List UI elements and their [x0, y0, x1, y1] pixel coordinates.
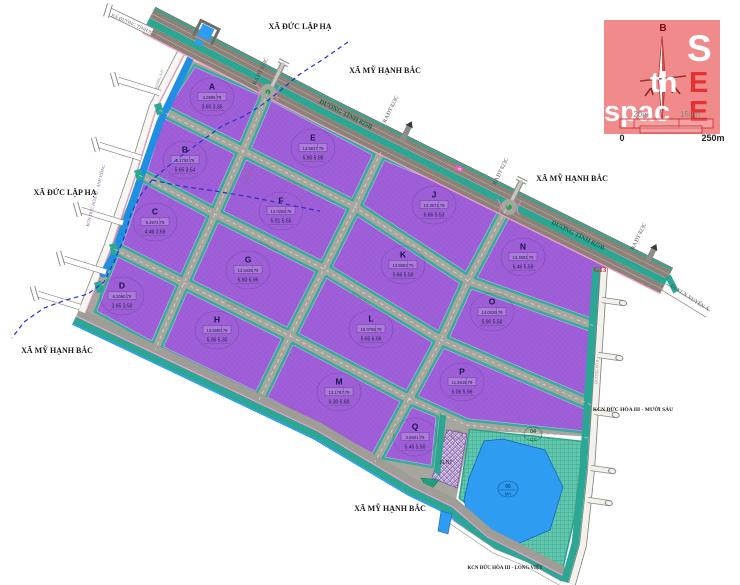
- svg-text:B: B: [182, 145, 188, 155]
- svg-text:B: B: [659, 23, 666, 34]
- svg-text:XÃ MỸ HẠNH BẮC: XÃ MỸ HẠNH BẮC: [536, 173, 608, 183]
- svg-text:13.5080 79: 13.5080 79: [207, 328, 229, 333]
- svg-text:11.3916 79: 11.3916 79: [452, 380, 473, 385]
- svg-text:th: th: [650, 67, 677, 99]
- svg-text:M: M: [335, 377, 342, 387]
- svg-text:D: D: [119, 281, 125, 291]
- svg-text:13.1787 79: 13.1787 79: [329, 390, 351, 395]
- svg-text:3.65 3.50: 3.65 3.50: [112, 304, 133, 310]
- svg-text:5.50 5.96: 5.50 5.96: [238, 278, 259, 284]
- svg-text:12.4581 79: 12.4581 79: [513, 255, 535, 260]
- svg-text:0: 0: [619, 133, 624, 143]
- svg-text:XÃ MỸ HẠNH BẮC: XÃ MỸ HẠNH BẮC: [349, 65, 421, 75]
- svg-text:5.1793 79: 5.1793 79: [176, 158, 195, 163]
- svg-text:13.8425 79: 13.8425 79: [238, 268, 260, 273]
- svg-text:5.91 5.55: 5.91 5.55: [271, 219, 292, 225]
- svg-text:G: G: [245, 255, 252, 265]
- svg-text:CX: CX: [530, 437, 536, 442]
- svg-text:20m: 20m: [633, 110, 649, 119]
- svg-text:XÃ MỸ HẠNH BẮC: XÃ MỸ HẠNH BẮC: [354, 503, 426, 513]
- svg-text:5.4574 79: 5.4574 79: [146, 220, 165, 225]
- svg-text:4.46 3.59: 4.46 3.59: [145, 230, 166, 236]
- svg-text:6.66 5.53: 6.66 5.53: [424, 213, 445, 219]
- svg-text:XÃ ĐỨC LẬP HẠ: XÃ ĐỨC LẬP HẠ: [268, 21, 331, 31]
- svg-text:5.90 5.98: 5.90 5.98: [303, 156, 324, 162]
- svg-text:A: A: [209, 82, 215, 92]
- svg-text:5.66 5.50: 5.66 5.50: [393, 273, 414, 279]
- svg-text:F: F: [278, 196, 283, 206]
- svg-text:5.06 5.96: 5.06 5.96: [452, 390, 473, 396]
- svg-text:KCN ĐỨC HÒA III - MƯỜI SÁU: KCN ĐỨC HÒA III - MƯỜI SÁU: [593, 405, 673, 413]
- svg-text:13.5817 79: 13.5817 79: [303, 146, 325, 151]
- svg-text:16.0765 79: 16.0765 79: [361, 327, 383, 332]
- svg-text:3.65 3.35: 3.65 3.35: [202, 105, 223, 111]
- svg-text:XLNT: XLNT: [440, 460, 453, 466]
- svg-text:14.0026 79: 14.0026 79: [482, 310, 504, 315]
- svg-text:L: L: [368, 314, 373, 324]
- svg-text:K: K: [400, 250, 407, 260]
- svg-text:250m: 250m: [701, 133, 724, 143]
- svg-text:6.2060 79: 6.2060 79: [113, 294, 132, 299]
- svg-text:150m: 150m: [680, 110, 700, 119]
- svg-text:N: N: [520, 242, 526, 252]
- svg-text:3.6501 79: 3.6501 79: [406, 435, 425, 440]
- svg-text:13.0268 79: 13.0268 79: [271, 209, 293, 214]
- svg-text:04: 04: [530, 429, 537, 435]
- svg-text:XÃ MỸ HẠNH BẮC: XÃ MỸ HẠNH BẮC: [21, 345, 93, 355]
- svg-text:E: E: [689, 67, 708, 99]
- svg-text:13.6582 79: 13.6582 79: [393, 263, 415, 268]
- svg-text:P: P: [459, 367, 465, 377]
- svg-text:5.46 5.59: 5.46 5.59: [513, 265, 534, 271]
- svg-text:5.46 5.50: 5.46 5.50: [405, 445, 426, 451]
- svg-text:6.30 5.60: 6.30 5.60: [329, 400, 350, 406]
- svg-text:KCN ĐỨC HÒA III - LONG VIỆT: KCN ĐỨC HÒA III - LONG VIỆT: [467, 565, 543, 571]
- svg-text:G13: G13: [594, 266, 607, 274]
- svg-text:5.90 5.50: 5.90 5.50: [482, 320, 503, 326]
- svg-text:E: E: [310, 133, 316, 143]
- svg-text:Q: Q: [412, 422, 419, 432]
- svg-text:J: J: [432, 190, 437, 200]
- svg-text:C: C: [152, 207, 158, 217]
- svg-text:XÃ ĐỨC LẬP HẠ: XÃ ĐỨC LẬP HẠ: [33, 187, 96, 197]
- svg-text:5.65 3.54: 5.65 3.54: [175, 168, 196, 174]
- svg-text:S: S: [687, 28, 712, 69]
- svg-text:O: O: [489, 297, 496, 307]
- svg-text:H: H: [214, 315, 220, 325]
- svg-text:05: 05: [505, 484, 511, 490]
- svg-text:MN: MN: [505, 492, 512, 497]
- svg-text:5.06 5.30: 5.06 5.30: [207, 338, 228, 344]
- svg-text:4.0996 79: 4.0996 79: [203, 95, 222, 100]
- svg-text:13.3671 79: 13.3671 79: [424, 203, 446, 208]
- svg-text:5.65 6.06: 5.65 6.06: [361, 337, 382, 343]
